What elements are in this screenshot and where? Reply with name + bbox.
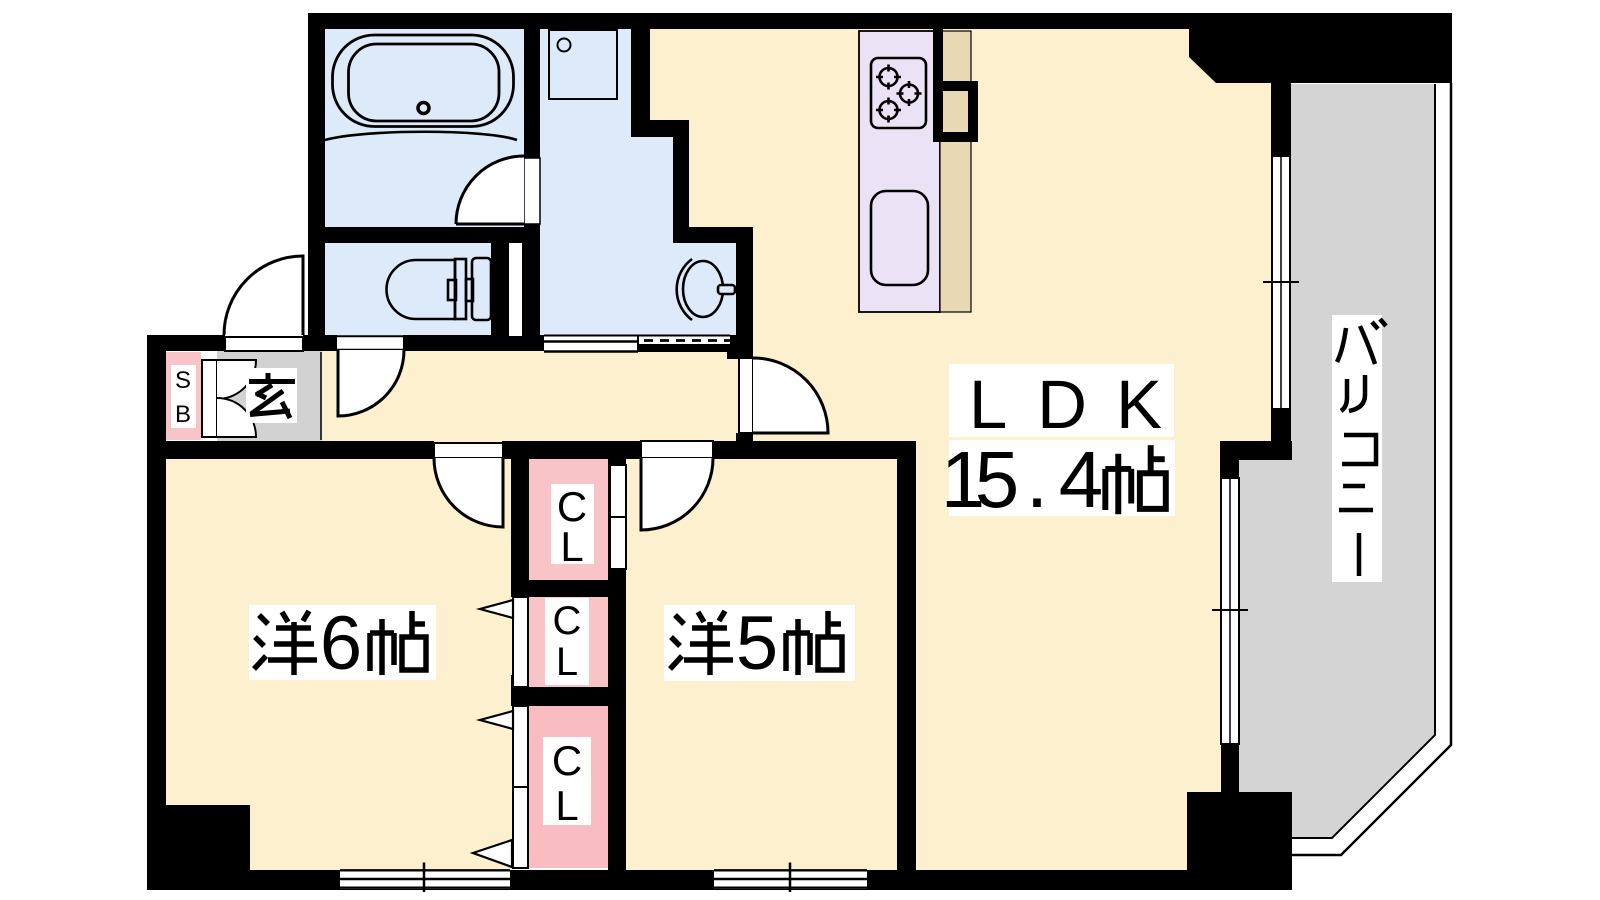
- svg-text:C: C: [553, 599, 582, 643]
- svg-text:B: B: [175, 401, 191, 428]
- svg-text:L: L: [969, 366, 1007, 443]
- svg-text:4: 4: [1059, 435, 1104, 524]
- svg-text:L: L: [555, 782, 578, 829]
- svg-text:5: 5: [736, 601, 778, 686]
- svg-text:S: S: [175, 367, 191, 394]
- svg-text:5: 5: [975, 435, 1020, 524]
- svg-text:.: .: [1026, 435, 1048, 524]
- svg-text:L: L: [556, 640, 578, 684]
- svg-text:L: L: [560, 523, 583, 570]
- svg-text:6: 6: [320, 601, 362, 686]
- svg-text:D: D: [1037, 366, 1087, 443]
- svg-text:K: K: [1116, 366, 1162, 443]
- svg-text:C: C: [552, 737, 582, 784]
